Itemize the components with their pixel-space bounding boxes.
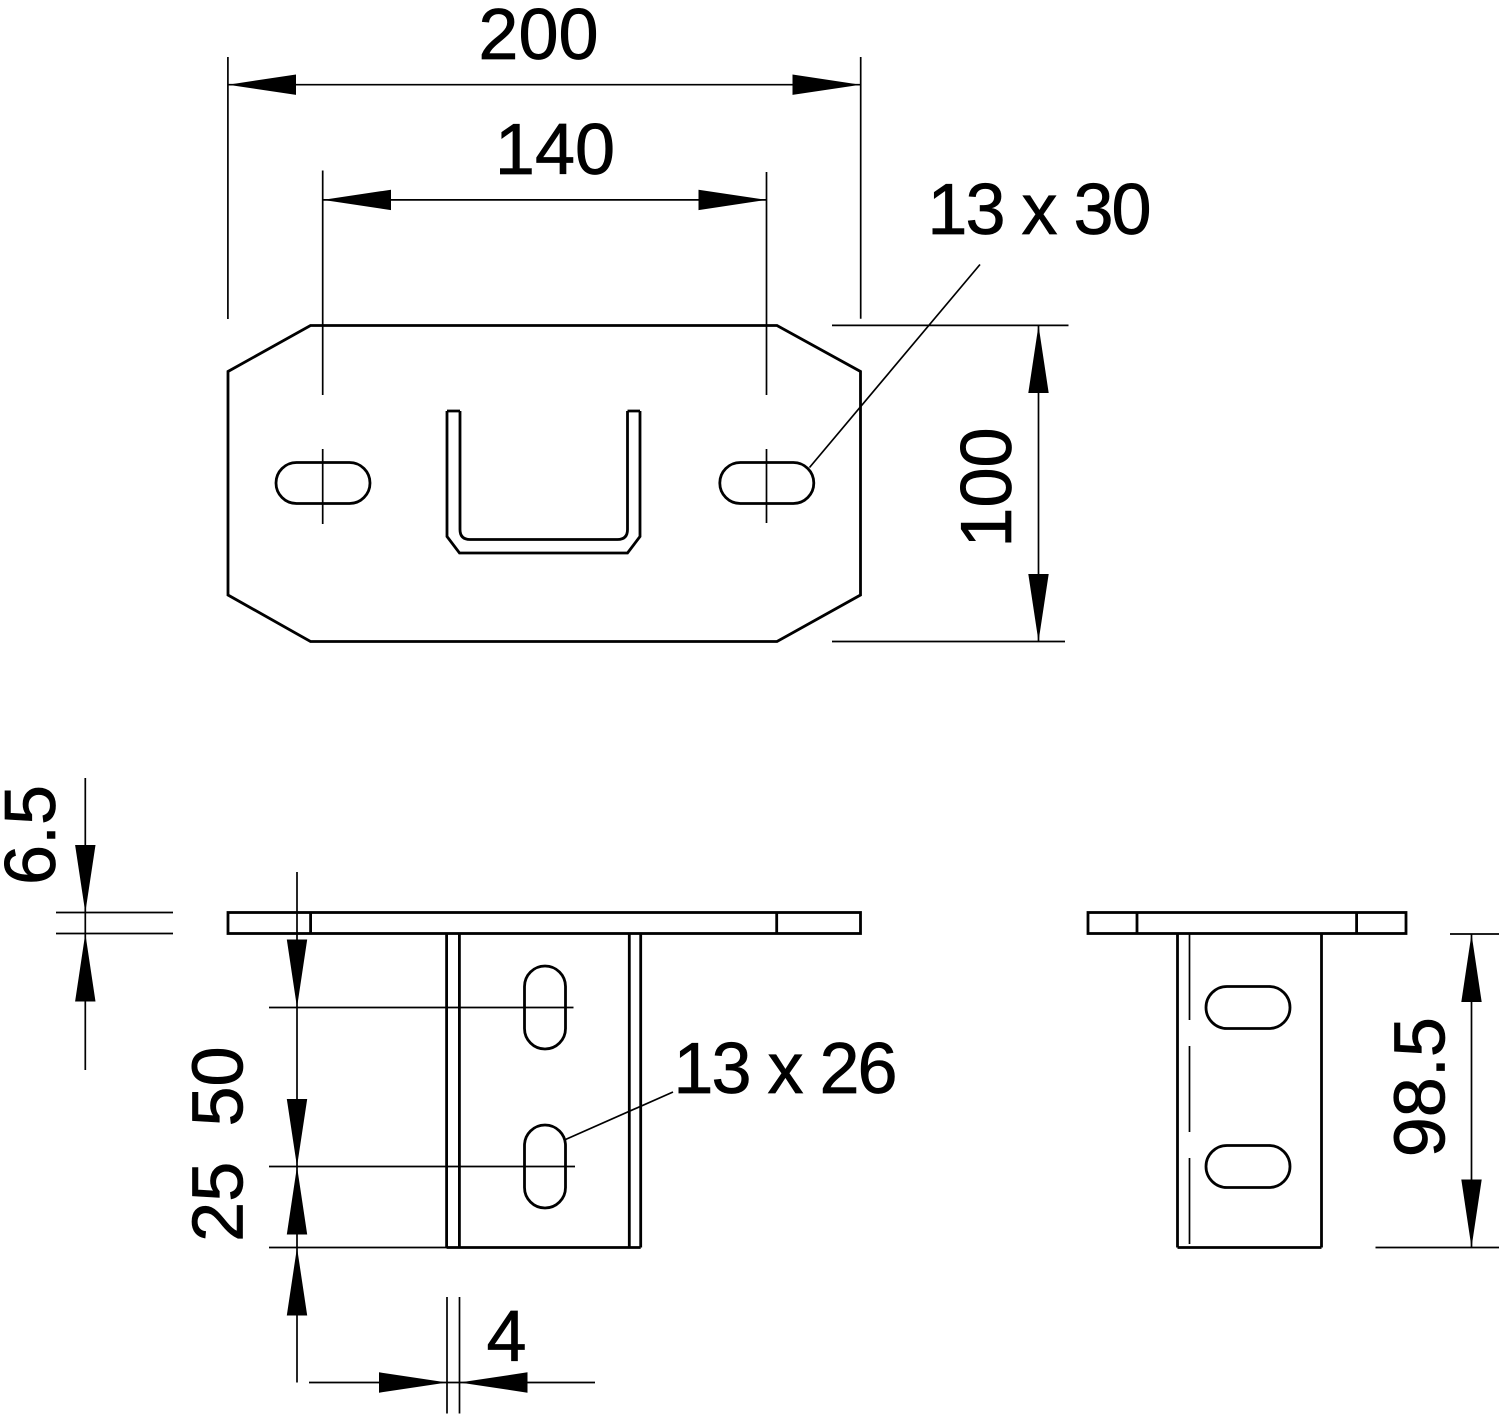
svg-text:6.5: 6.5 bbox=[0, 785, 71, 885]
svg-text:13 x 30: 13 x 30 bbox=[927, 170, 1149, 250]
svg-text:25: 25 bbox=[178, 1162, 258, 1242]
svg-text:140: 140 bbox=[495, 110, 615, 190]
svg-text:50: 50 bbox=[178, 1046, 258, 1126]
svg-text:100: 100 bbox=[947, 427, 1027, 547]
svg-text:200: 200 bbox=[478, 0, 598, 75]
svg-text:13 x 26: 13 x 26 bbox=[673, 1029, 895, 1109]
svg-text:98.5: 98.5 bbox=[1381, 1017, 1461, 1157]
svg-text:4: 4 bbox=[486, 1297, 526, 1377]
